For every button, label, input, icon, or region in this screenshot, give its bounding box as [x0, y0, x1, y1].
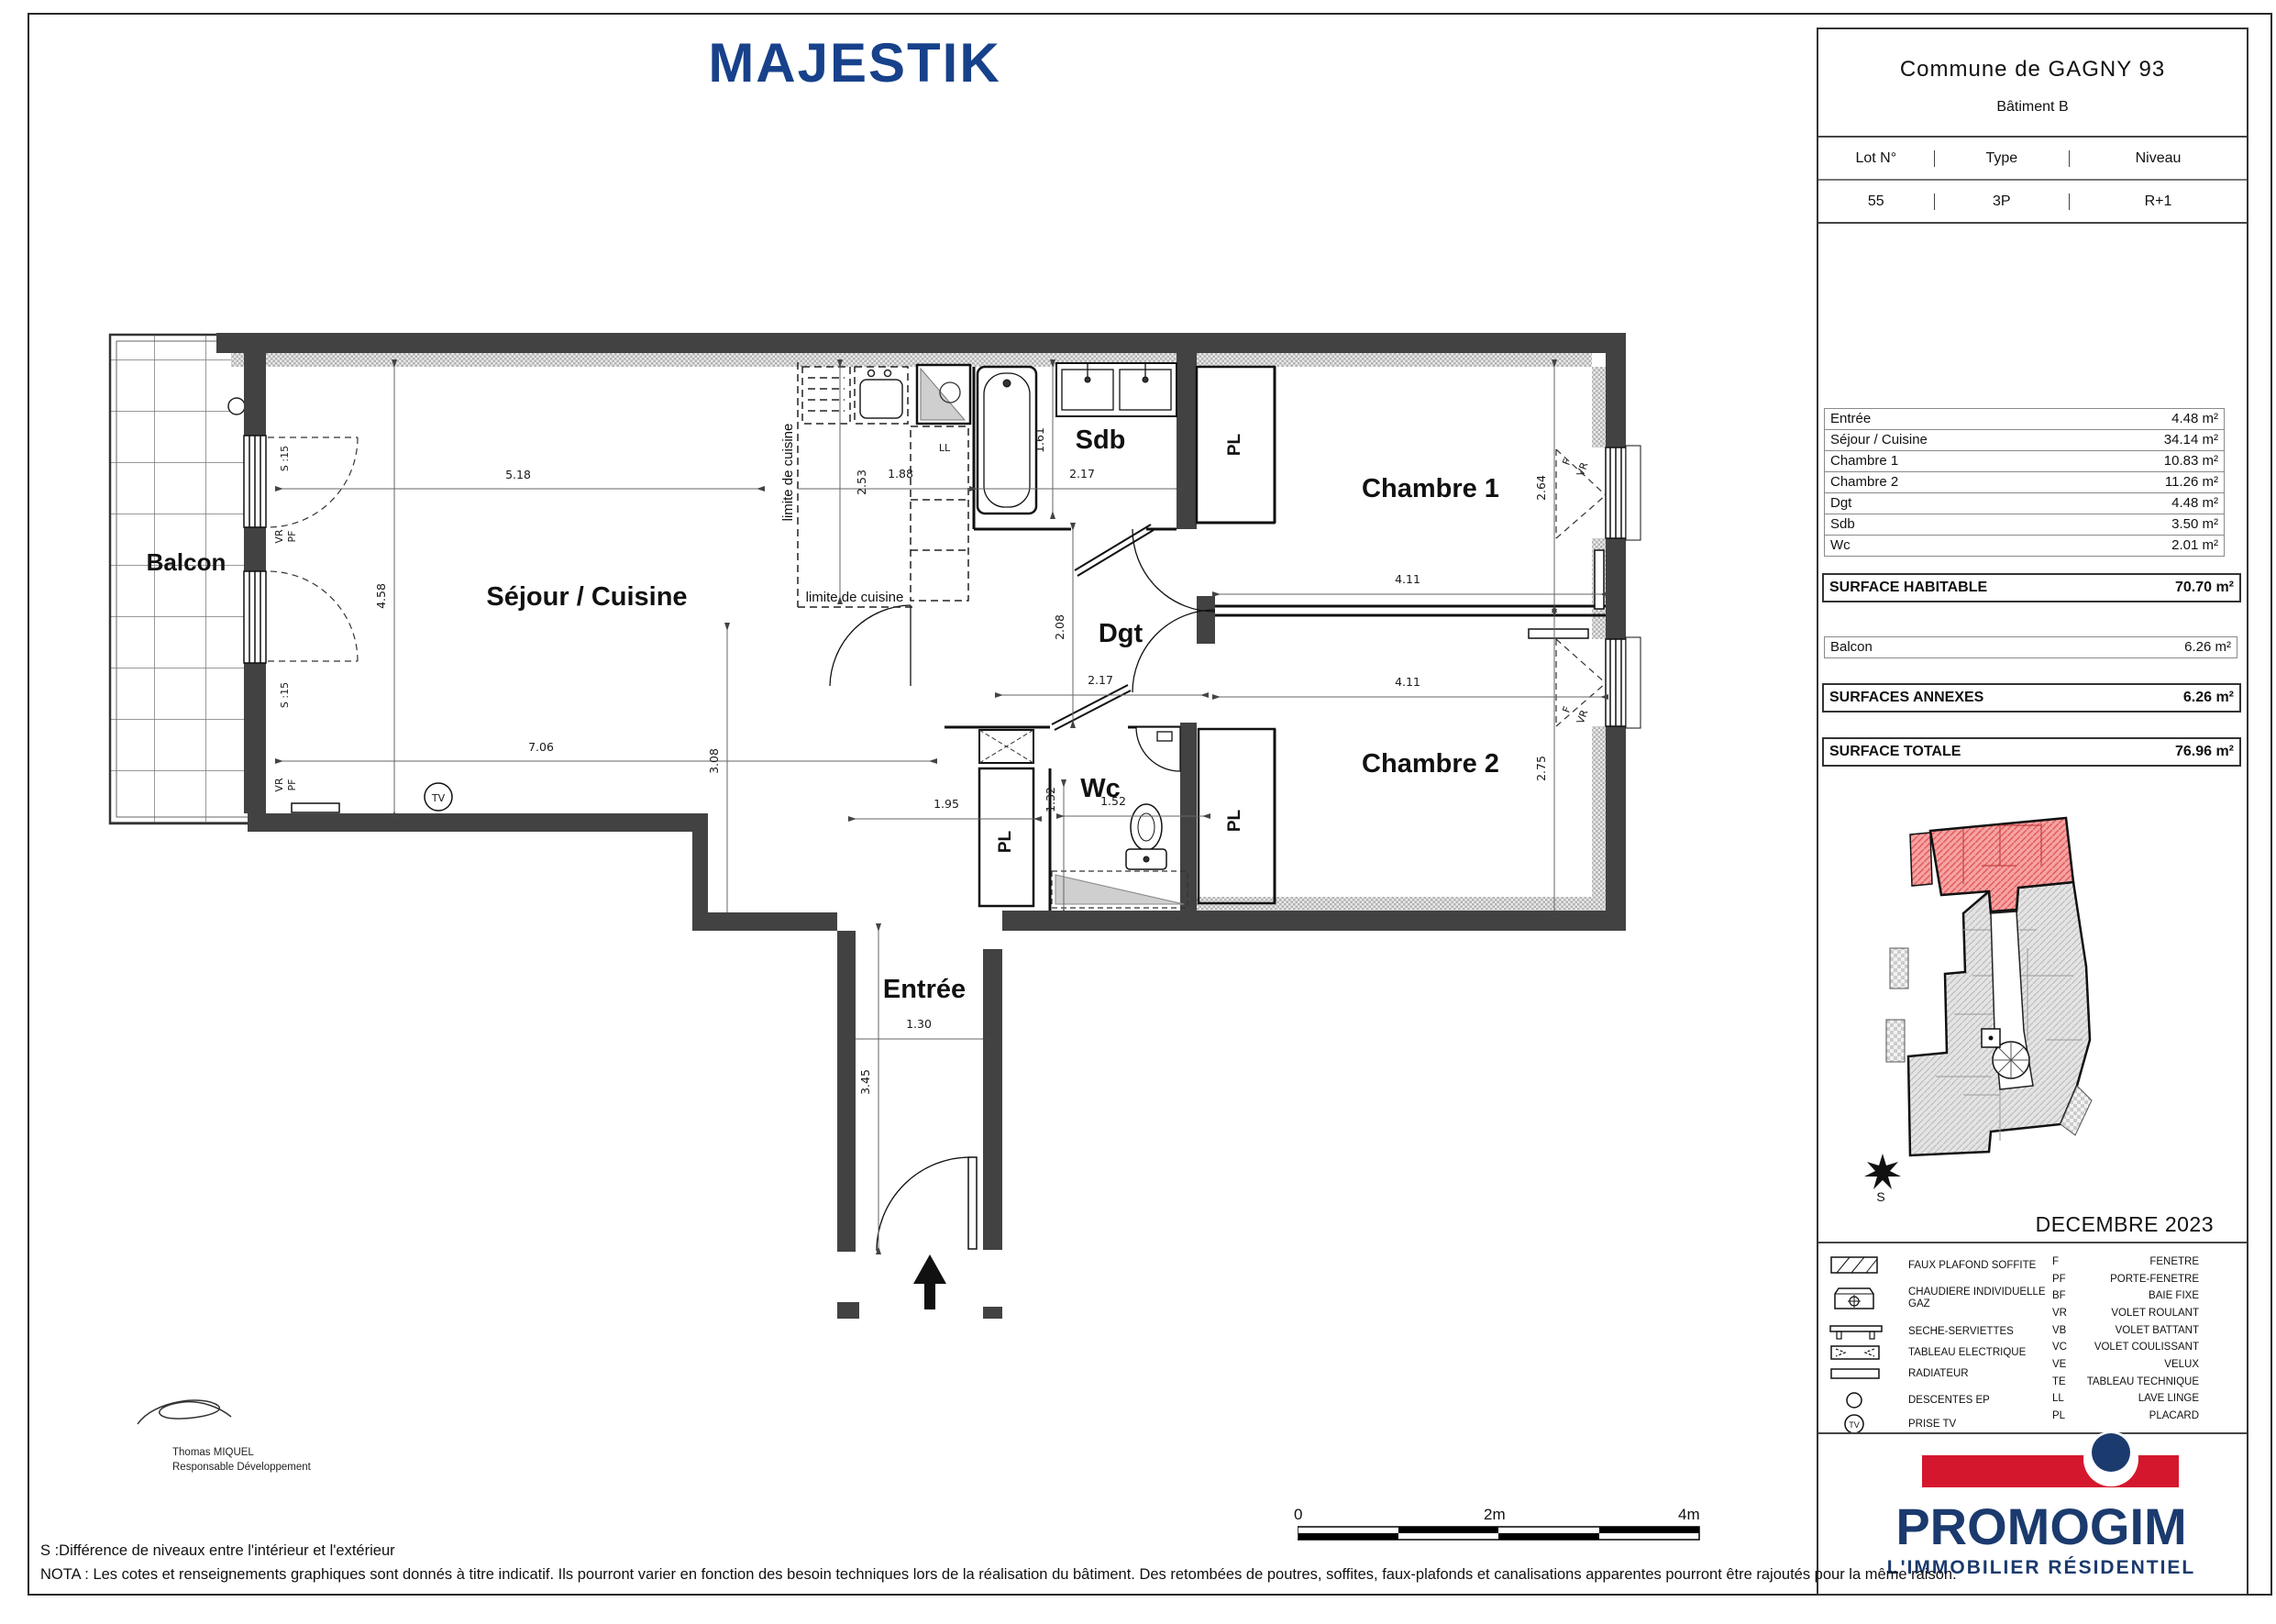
vr-label-2: VR [273, 778, 285, 792]
room-wc: Wc [1080, 774, 1121, 803]
balcony [110, 335, 263, 823]
lot-table-header-row: Lot N° Type Niveau [1818, 138, 2247, 181]
table-row: Chambre 211.26 m² [1824, 471, 2225, 493]
descentes-ep-symbol [228, 398, 245, 414]
abbr-key: VR [2052, 1308, 2067, 1319]
signature-name: Thomas MIQUEL [172, 1447, 254, 1458]
abbr-term: VOLET BATTANT [2116, 1325, 2199, 1336]
dim-208: 2.08 [1053, 614, 1066, 640]
room-name: Sdb [1830, 514, 1855, 535]
ll-label: LL [939, 442, 951, 454]
room-area: 2.01 m² [2171, 536, 2218, 556]
legend-label: DESCENTES EP [1908, 1395, 2055, 1407]
legend-item: CHAUDIERE INDIVIDUELLE GAZ [1829, 1287, 1884, 1310]
signature-scribble [128, 1389, 248, 1440]
niveau-value: R+1 [2070, 193, 2247, 210]
dim-518: 5.18 [505, 468, 531, 481]
page-title: MAJESTIK [708, 31, 1000, 94]
abbr-key: F [2052, 1256, 2059, 1267]
abbr-term: FENETRE [2149, 1256, 2199, 1267]
surface-habitable-label: SURFACE HABITABLE [1829, 575, 1987, 601]
interior-doors [830, 525, 1215, 1251]
dim-195: 1.95 [934, 797, 959, 811]
chaudiere-icon [1829, 1287, 1884, 1310]
vr-label-4: VR [1574, 708, 1591, 725]
dim-161: 1.61 [1033, 427, 1046, 453]
room-name: Séjour / Cuisine [1830, 430, 1928, 450]
kitchen-sink [860, 370, 902, 419]
legend-label: RADIATEUR [1908, 1368, 2055, 1380]
table-row: Chambre 110.83 m² [1824, 450, 2225, 472]
dim-345: 3.45 [858, 1069, 872, 1095]
room-name: Wc [1830, 536, 1851, 556]
type-value: 3P [1935, 193, 2070, 210]
lot-value: 55 [1818, 193, 1935, 210]
lot-table: Lot N° Type Niveau 55 3P R+1 [1818, 136, 2247, 224]
compass-south-label: S [1876, 1189, 1884, 1204]
room-area: 4.48 m² [2171, 409, 2218, 429]
wc-corner-sink [1136, 727, 1180, 771]
shower [917, 365, 970, 424]
pl-label-top: PL [1225, 433, 1244, 456]
logo-dot [2092, 1433, 2130, 1472]
pf-label-2: PF [286, 779, 298, 791]
balcon-value: 6.26 m² [2184, 637, 2231, 657]
surfaces-annexes-box: SURFACES ANNEXES 6.26 m² [1822, 683, 2241, 713]
balcon-label: Balcon [1830, 637, 1873, 657]
abbr-term: VELUX [2164, 1359, 2199, 1370]
room-entree: Entrée [883, 975, 966, 1004]
abbr-term: LAVE LINGE [2138, 1393, 2199, 1404]
commune-title: Commune de GAGNY 93 [1818, 57, 2247, 83]
niveau-header: Niveau [2070, 150, 2247, 167]
room-sejour: Séjour / Cuisine [486, 582, 687, 612]
legend-label: TABLEAU ELECTRIQUE [1908, 1347, 2055, 1359]
abbr-key: LL [2052, 1393, 2064, 1404]
dim-132: 1.32 [1044, 787, 1057, 812]
floor-plan: TV 5.18 4.58 7.06 2.53 1.88 1.61 2.17 2.… [28, 183, 1770, 1375]
table-row: Entrée4.48 m² [1824, 408, 2225, 430]
f-label-2: F [1561, 705, 1574, 714]
table-row: Séjour / Cuisine34.14 m² [1824, 429, 2225, 451]
room-sdb: Sdb [1076, 425, 1126, 455]
tableau-electrique-icon [1829, 1344, 1884, 1361]
dim-217b: 2.17 [1088, 673, 1113, 687]
surface-habitable-value: 70.70 m² [2175, 575, 2234, 601]
table-row: Wc2.01 m² [1824, 535, 2225, 557]
room-balcon: Balcon [147, 548, 226, 576]
abbr-term: PORTE-FENETRE [2110, 1274, 2199, 1285]
legend-divider-bottom [1818, 1432, 2247, 1434]
lot-header: Lot N° [1818, 150, 1935, 167]
scale-bar-graphic [1298, 1526, 1701, 1542]
dim-264: 2.64 [1534, 475, 1548, 501]
dim-308: 3.08 [707, 748, 721, 774]
legend-item: RADIATEUR [1829, 1367, 1884, 1380]
table-row: Dgt4.48 m² [1824, 492, 2225, 514]
surface-totale-value: 76.96 m² [2175, 739, 2234, 765]
s15-label-1: S :15 [279, 446, 291, 471]
room-area: 4.48 m² [2171, 493, 2218, 514]
abbr-key: TE [2052, 1376, 2066, 1387]
s15-label-2: S :15 [279, 682, 291, 708]
dim-188: 1.88 [888, 467, 913, 481]
room-name: Chambre 2 [1830, 472, 1898, 492]
seche-serviettes-icon [1829, 1322, 1884, 1341]
scale-4m: 4m [1678, 1506, 1700, 1524]
limite-cuisine-horizontal: limite de cuisine [806, 590, 904, 605]
scale-zero: 0 [1294, 1506, 1302, 1524]
double-sink [1056, 363, 1177, 416]
legend-item: SECHE-SERVIETTES [1829, 1322, 1884, 1341]
legend-item: TABLEAU ELECTRIQUE [1829, 1344, 1884, 1361]
balcon-row: Balcon 6.26 m² [1824, 636, 2237, 658]
dim-458: 4.58 [374, 583, 388, 609]
room-name: Entrée [1830, 409, 1871, 429]
surface-table: Entrée4.48 m² Séjour / Cuisine34.14 m² C… [1824, 408, 2225, 557]
pf-label-1: PF [286, 531, 298, 543]
room-chambre2: Chambre 2 [1362, 749, 1499, 779]
abbr-term: TABLEAU TECHNIQUE [2087, 1376, 2199, 1387]
surface-totale-box: SURFACE TOTALE 76.96 m² [1822, 737, 2241, 767]
legend-divider-top [1818, 1242, 2247, 1243]
legend-label: FAUX PLAFOND SOFFITE [1908, 1260, 2055, 1272]
plan-date: DECEMBRE 2023 [2036, 1212, 2214, 1237]
room-area: 3.50 m² [2171, 514, 2218, 535]
lot-table-value-row: 55 3P R+1 [1818, 181, 2247, 222]
surfaces-annexes-value: 6.26 m² [2183, 685, 2234, 711]
faux-plafond-icon [1829, 1254, 1884, 1276]
radiateur-icon [1829, 1367, 1884, 1380]
vr-label-1: VR [273, 529, 285, 544]
legend-label: PRISE TV [1908, 1419, 2055, 1431]
scale-2m: 2m [1484, 1506, 1506, 1524]
key-plan: S [1853, 811, 2242, 1205]
abbr-term: PLACARD [2149, 1410, 2199, 1421]
abbr-key: PL [2052, 1410, 2065, 1421]
nota-note: NOTA : Les cotes et renseignements graph… [40, 1566, 1957, 1584]
soffite [1052, 871, 1188, 908]
dim-411a: 4.11 [1395, 572, 1420, 586]
tv-label: TV [431, 792, 446, 804]
abbr-term: VOLET COULISSANT [2094, 1342, 2199, 1353]
dim-217a: 2.17 [1069, 467, 1095, 481]
abbr-key: BF [2052, 1290, 2066, 1301]
batiment-subtitle: Bâtiment B [1818, 99, 2247, 116]
room-chambre1: Chambre 1 [1362, 474, 1499, 503]
surface-totale-label: SURFACE TOTALE [1829, 739, 1961, 765]
tableau-electrique-symbol [979, 730, 1033, 763]
tv-socket: TV [425, 783, 452, 811]
descentes-ep-icon [1829, 1390, 1884, 1410]
limite-cuisine-vertical: limite de cuisine [780, 424, 796, 522]
abbr-term: VOLET ROULANT [2111, 1308, 2199, 1319]
entry-arrow [913, 1254, 946, 1309]
compass: S [1864, 1154, 1901, 1204]
svg-text:TV: TV [1849, 1420, 1860, 1430]
signature-role: Responsable Développement [172, 1462, 311, 1473]
surface-habitable-box: SURFACE HABITABLE 70.70 m² [1822, 573, 2241, 602]
room-dgt: Dgt [1099, 619, 1144, 648]
pl-label-left: PL [996, 830, 1015, 853]
legend-item: FAUX PLAFOND SOFFITE [1829, 1254, 1884, 1276]
bathtub [978, 367, 1036, 514]
pl-label-right: PL [1225, 809, 1244, 832]
logo-name: PROMOGIM [1809, 1497, 2273, 1556]
room-area: 10.83 m² [2164, 451, 2218, 471]
abbr-key: VE [2052, 1359, 2066, 1370]
logo-red-bar [1922, 1455, 2179, 1487]
abbr-term: BAIE FIXE [2149, 1290, 2199, 1301]
legend-label: CHAUDIERE INDIVIDUELLE GAZ [1908, 1287, 2055, 1310]
table-row: Sdb3.50 m² [1824, 514, 2225, 536]
info-panel: Commune de GAGNY 93 Bâtiment B Lot N° Ty… [1817, 28, 2248, 1596]
dim-253: 2.53 [855, 470, 868, 495]
dim-706: 7.06 [528, 740, 554, 754]
room-name: Dgt [1830, 493, 1851, 514]
room-name: Chambre 1 [1830, 451, 1898, 471]
dim-411b: 4.11 [1395, 675, 1420, 689]
dim-130: 1.30 [906, 1017, 932, 1031]
room-area: 34.14 m² [2164, 430, 2218, 450]
vr-label-3: VR [1574, 460, 1591, 478]
abbr-key: VC [2052, 1342, 2067, 1353]
s-note: S :Différence de niveaux entre l'intérie… [40, 1542, 395, 1560]
legend-label: SECHE-SERVIETTES [1908, 1326, 2055, 1338]
abbr-key: PF [2052, 1274, 2066, 1285]
type-header: Type [1935, 150, 2070, 167]
legend-item: DESCENTES EP [1829, 1390, 1884, 1410]
surfaces-annexes-label: SURFACES ANNEXES [1829, 685, 1983, 711]
dim-275: 2.75 [1534, 756, 1548, 781]
toilet [1126, 804, 1166, 869]
abbr-key: VB [2052, 1325, 2066, 1336]
room-area: 11.26 m² [2165, 472, 2218, 492]
